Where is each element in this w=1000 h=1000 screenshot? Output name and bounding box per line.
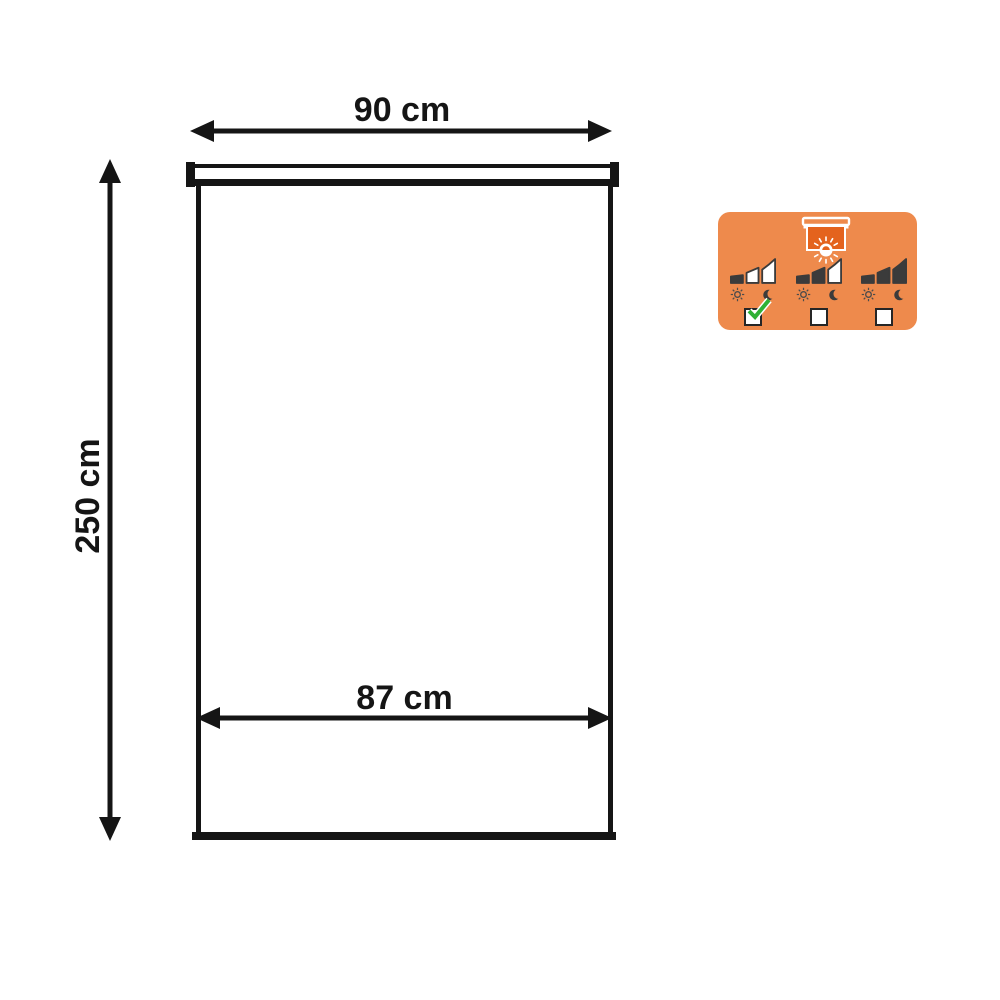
light-level-bars-icon	[861, 258, 907, 284]
moon-icon	[829, 287, 842, 303]
blind-headrail	[190, 164, 618, 186]
opacity-options-row	[728, 258, 909, 326]
option-checkbox	[810, 308, 828, 326]
sun-icon	[796, 287, 811, 302]
headrail-left-cap	[186, 162, 195, 187]
opacity-option-1	[728, 258, 778, 326]
height-dimension-arrow	[92, 157, 128, 843]
option-checkbox	[875, 308, 893, 326]
blind-fabric-panel	[196, 186, 613, 832]
light-level-bars-icon	[730, 258, 776, 284]
moon-icon	[894, 287, 907, 303]
light-blocking-options-badge	[718, 212, 917, 330]
blind-bottom-bar	[192, 832, 616, 840]
fabric-width-dimension-arrow	[194, 701, 614, 735]
width-dimension-arrow	[188, 114, 614, 148]
sun-icon	[730, 287, 745, 302]
opacity-option-3	[859, 258, 909, 326]
light-level-bars-icon	[796, 258, 842, 284]
checkmark-icon	[745, 298, 771, 324]
product-dimension-diagram: 90 cm 250 cm 87 cm	[0, 0, 1000, 1000]
headrail-right-cap	[610, 162, 619, 187]
sun-icon	[861, 287, 876, 302]
opacity-option-2	[794, 258, 844, 326]
